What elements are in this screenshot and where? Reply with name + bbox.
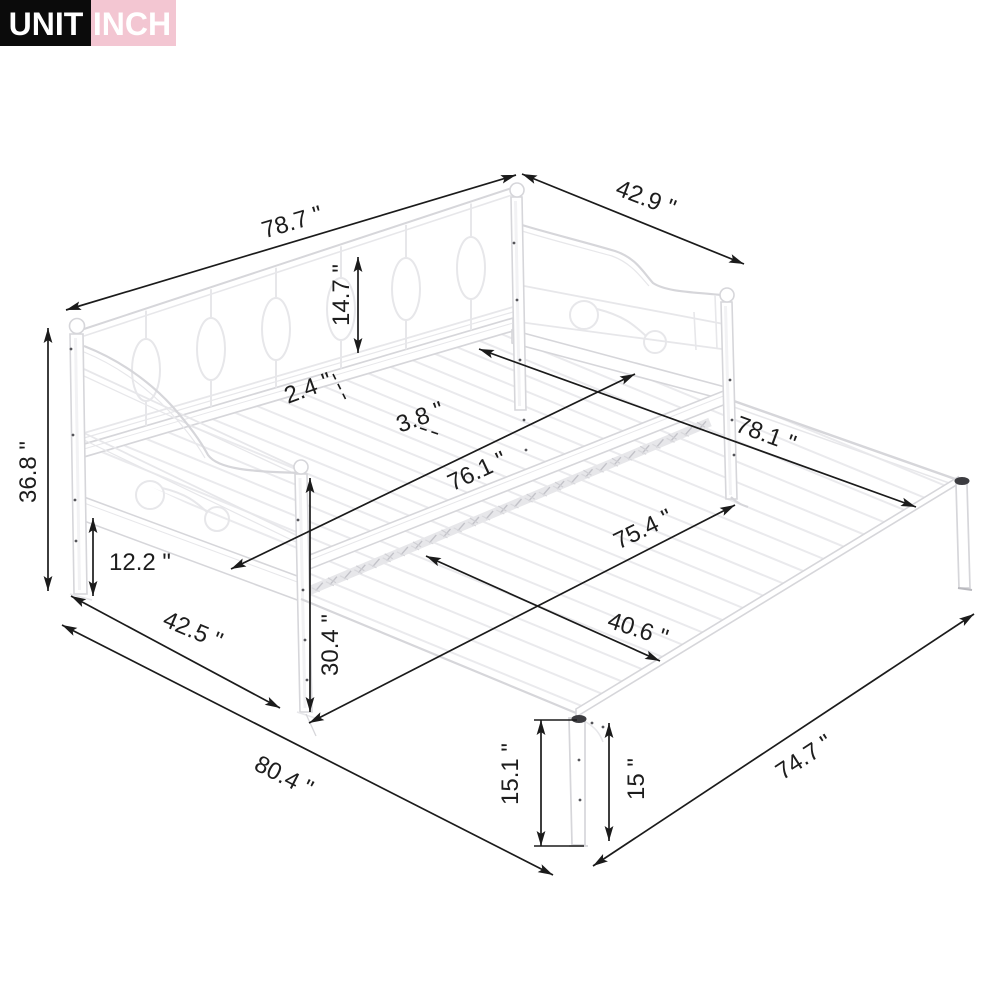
svg-text:14.7 ": 14.7 " [328,264,355,326]
svg-text:36.8 ": 36.8 " [15,441,42,503]
svg-text:INCH: INCH [93,6,171,42]
svg-text:15 ": 15 " [623,758,650,800]
svg-text:12.2 ": 12.2 " [109,549,171,576]
svg-text:15.1 ": 15.1 " [497,743,524,805]
svg-text:UNIT: UNIT [9,6,84,42]
svg-text:30.4 ": 30.4 " [317,614,344,676]
